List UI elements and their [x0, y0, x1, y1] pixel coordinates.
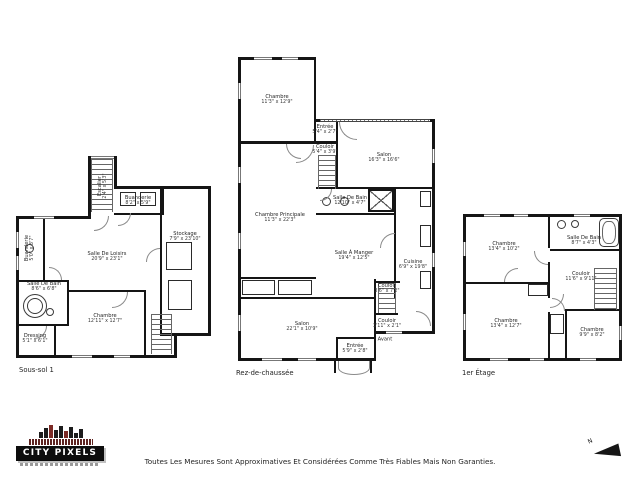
room-dims: 11'6" x 9'11" — [565, 276, 596, 282]
floor-title-ground: Rez-de-chaussée — [236, 369, 294, 377]
wall — [336, 337, 338, 358]
wall — [67, 280, 69, 326]
room-label: Chambre Principale 11'3" x 22'3" — [255, 211, 305, 222]
toilet-icon — [571, 220, 579, 228]
bathtub-icon — [599, 218, 619, 247]
room-dims: 2'4" x 5'3" — [102, 173, 108, 198]
north-triangle-icon — [593, 443, 621, 461]
room-dims: 5'9" x 2'8" — [342, 348, 367, 354]
room-label: Salle De Loisirs 20'9" x 23'1" — [88, 250, 127, 261]
floor-title-first: 1er Étage — [462, 369, 495, 377]
room-dims: 12'11" x 12'7" — [88, 318, 122, 324]
room-label: Salle À Manger 19'4" x 12'5" — [335, 249, 373, 260]
window — [432, 149, 435, 163]
window — [238, 83, 241, 99]
room-dims: 3'6" x 7'2" — [374, 288, 399, 294]
sink-icon — [46, 308, 54, 316]
room-dims: 12'10" x 4'7" — [333, 200, 367, 206]
door-arc — [339, 122, 357, 140]
logo-stripes — [29, 439, 93, 445]
window — [238, 315, 241, 331]
floor-plan-first: Chambre 13'4" x 10'2" Salle De Bain 8'7"… — [462, 214, 629, 364]
window — [114, 355, 130, 358]
room-label: Salon 16'3" x 16'6" — [368, 151, 399, 162]
wall — [238, 277, 316, 279]
room-dims: 5'4" x 2'7" — [312, 129, 337, 135]
window — [34, 216, 54, 219]
wall — [548, 262, 550, 298]
wall — [463, 214, 466, 361]
window — [574, 214, 590, 217]
skyline-icon — [16, 424, 106, 438]
window — [262, 358, 282, 361]
room-label: Cuisine 6'9" x 19'8" — [399, 258, 427, 269]
room-dims: 8'6" x 6'8" — [27, 286, 61, 292]
counter — [420, 225, 431, 247]
room-label: Chambre 12'11" x 12'7" — [88, 312, 122, 323]
wall — [16, 355, 177, 358]
window — [91, 156, 114, 159]
room-dims: 19'4" x 12'5" — [335, 255, 373, 261]
door-arc — [416, 311, 431, 326]
disclaimer-text: Toutes Les Mesures Sont Approximatives E… — [0, 457, 640, 466]
shower-icon — [368, 189, 394, 212]
wall — [43, 216, 45, 282]
wall — [238, 57, 316, 60]
room-label: Couloir 5'4" x 3'9" — [312, 143, 337, 154]
room-dims: 13'4" x 12'7" — [490, 323, 521, 329]
window — [463, 242, 466, 256]
door-arc — [552, 298, 565, 311]
window-band — [320, 119, 430, 122]
door-arc — [118, 213, 131, 226]
door-arc — [380, 233, 395, 248]
room-dims: 11'3" x 12'9" — [261, 99, 292, 105]
entry-door-arc — [338, 361, 370, 375]
door-arc — [504, 268, 518, 282]
room-label: Couloir 11'6" x 9'11" — [565, 270, 596, 281]
room-label: Couloir 3'6" x 7'2" — [374, 282, 399, 293]
room-dims: 8'2" x 5'9" — [125, 200, 151, 206]
room-label: Buanderie 5'0" x 8'7" — [23, 235, 34, 261]
window — [238, 167, 241, 183]
wall — [162, 186, 164, 215]
window — [16, 256, 19, 270]
room-dims: 9'9" x 8'2" — [579, 332, 604, 338]
room-dims: 11'3" x 22'3" — [255, 217, 305, 223]
north-arrow: N — [588, 438, 624, 464]
window — [298, 358, 316, 361]
floor-plan-basement: Escalier 2'4" x 5'3" Buanderie 8'2" x 5'… — [16, 152, 215, 378]
wall — [336, 337, 374, 339]
window — [484, 214, 500, 217]
window — [16, 232, 19, 248]
door-arc — [94, 216, 109, 231]
floor-plan-ground: Chambre 11'3" x 12'9" Entrée 5'4" x 2'7"… — [236, 57, 460, 375]
room-dims: 20'9" x 23'1" — [88, 256, 127, 262]
window — [238, 233, 241, 249]
wall — [370, 361, 372, 373]
wall — [548, 214, 550, 248]
floor-title-basement: Sous-sol 1 — [19, 366, 54, 374]
wall — [316, 213, 396, 215]
window — [514, 214, 528, 217]
room-label: Avant — [378, 336, 393, 342]
wall — [334, 361, 336, 373]
window — [580, 358, 596, 361]
wall — [238, 297, 374, 299]
wall — [54, 326, 56, 357]
room-label: Chambre 13'4" x 10'2" — [488, 240, 519, 251]
room-dims: 3'11" x 2'1" — [373, 323, 401, 329]
room-label: Chambre 13'4" x 12'7" — [490, 317, 521, 328]
window — [282, 57, 298, 60]
stairs — [151, 314, 172, 354]
room-label: Chambre 9'9" x 8'2" — [579, 326, 604, 337]
sink-icon — [557, 220, 566, 229]
stove-icon — [420, 271, 431, 289]
window — [490, 358, 508, 361]
room-label: Entrée 5'9" x 2'8" — [342, 342, 367, 353]
room-label: Salle De Bain 8'7" x 4'3" — [567, 234, 601, 245]
room-dims: 8'7" x 4'3" — [567, 240, 601, 246]
closet — [166, 242, 192, 270]
closet — [242, 280, 275, 295]
room-dims: 13'4" x 10'2" — [488, 246, 519, 252]
door-arc — [534, 251, 548, 265]
closet — [278, 280, 312, 295]
room-label: Salle De Bain 12'10" x 4'7" — [333, 194, 367, 205]
door-arc — [296, 145, 314, 163]
wall — [67, 290, 146, 292]
room-dims: 6'9" x 19'8" — [399, 264, 427, 270]
window — [254, 57, 272, 60]
bathtub-icon — [27, 298, 43, 314]
window — [619, 326, 622, 340]
window — [386, 331, 402, 334]
north-label: N — [587, 437, 594, 445]
wall — [160, 188, 162, 334]
stairs — [594, 268, 617, 310]
wall — [550, 249, 621, 251]
room-dims: 5'4" x 3'9" — [312, 149, 337, 155]
wall — [565, 311, 567, 358]
room-label: Salle De Bain 8'6" x 6'8" — [27, 280, 61, 291]
room-label: Escalier 2'4" x 5'3" — [96, 173, 107, 198]
wall — [376, 313, 398, 315]
closet — [550, 314, 564, 334]
wall — [114, 156, 117, 189]
wall — [144, 292, 146, 357]
room-label: Dressing 5'1" x 6'1" — [22, 332, 47, 343]
room-label: Salon 22'1" x 10'9" — [286, 320, 317, 331]
room-dims: 5'1" x 6'1" — [22, 338, 47, 344]
stairs — [318, 155, 336, 189]
room-dims: 5'0" x 8'7" — [29, 235, 35, 261]
room-label: Buanderie 8'2" x 5'9" — [125, 194, 151, 205]
room-name: Avant — [378, 336, 393, 342]
room-label: Chambre 11'3" x 12'9" — [261, 93, 292, 104]
room-label: Stockage 7'9" x 23'10" — [169, 230, 200, 241]
window — [530, 358, 544, 361]
window — [463, 314, 466, 330]
door-arc — [146, 248, 160, 262]
window — [432, 253, 435, 267]
wall — [208, 186, 211, 335]
door-arc — [49, 267, 62, 280]
closet — [528, 284, 548, 296]
room-label: Couloir 3'11" x 2'1" — [373, 317, 401, 328]
room-label: Entrée 5'4" x 2'7" — [312, 123, 337, 134]
closet — [168, 280, 192, 310]
wall — [374, 331, 435, 334]
room-dims: 16'3" x 16'6" — [368, 157, 399, 163]
door-arc — [112, 292, 128, 308]
fridge-icon — [420, 191, 431, 207]
window — [72, 355, 92, 358]
room-dims: 22'1" x 10'9" — [286, 326, 317, 332]
room-dims: 7'9" x 23'10" — [169, 236, 200, 242]
